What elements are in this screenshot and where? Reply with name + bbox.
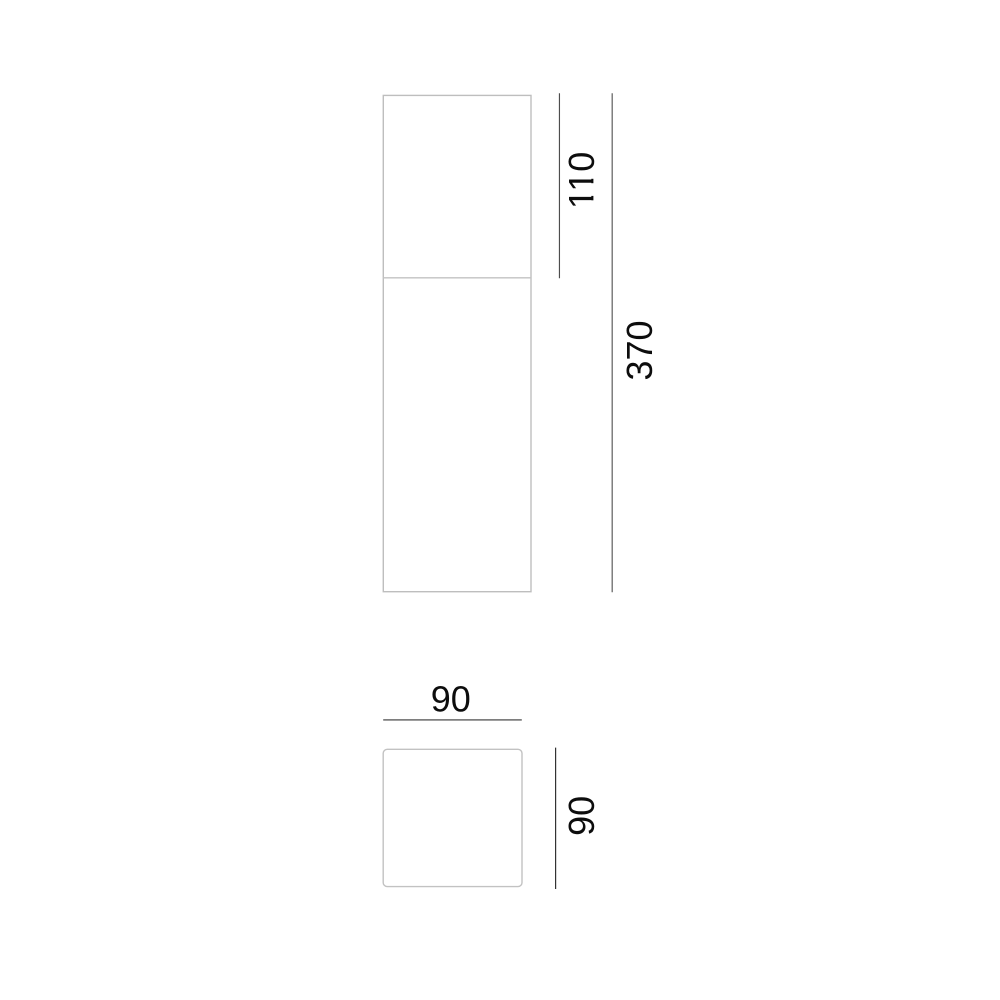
svg-text:90: 90 bbox=[561, 796, 602, 836]
svg-text:370: 370 bbox=[619, 320, 660, 380]
svg-text:90: 90 bbox=[431, 679, 471, 720]
